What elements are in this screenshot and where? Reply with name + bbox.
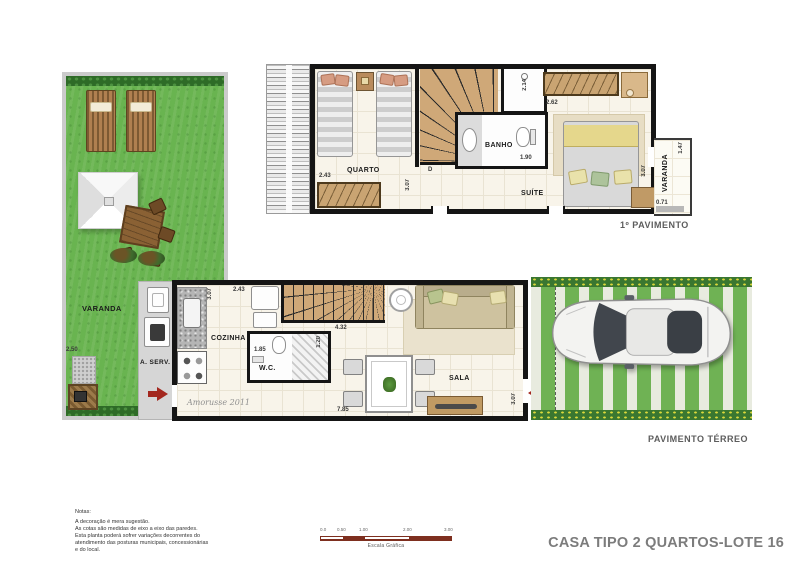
dim-quarto-depth: 3.07	[405, 179, 411, 191]
scale-segment	[321, 539, 343, 541]
service-area: A. SERV.	[138, 281, 174, 420]
bbq-pit	[74, 391, 87, 402]
door-opening	[172, 385, 177, 407]
door-opening	[431, 206, 449, 214]
single-bed	[376, 71, 412, 157]
scale-caption: Escala Gráfica	[320, 543, 452, 549]
single-bed	[317, 71, 353, 157]
graphic-scale: 0.0 0.50 1.00 2.00 3.00 Escala Gráfica	[320, 527, 452, 549]
stool	[626, 89, 634, 97]
notes-line: As cotas são medidas de eixo a eixo das …	[75, 526, 245, 533]
kitchen-sink	[183, 298, 201, 328]
tv-icon	[435, 404, 477, 409]
room-label-suite: SUÍTE	[521, 190, 544, 197]
scale-tick: 1.00	[359, 527, 368, 532]
bedspread	[564, 125, 638, 147]
pillow	[393, 74, 408, 86]
dining-chair	[415, 359, 435, 375]
pillow	[568, 169, 588, 186]
room-label-wc: W.C.	[259, 365, 276, 372]
dim-wc-depth: 1.20	[316, 336, 322, 348]
room-label-banho: BANHO	[485, 142, 513, 149]
pillow	[613, 169, 632, 185]
wardrobe	[317, 182, 381, 208]
dim-sala-depth: 3.07	[511, 393, 517, 405]
driveway	[531, 277, 752, 420]
pillow	[441, 291, 459, 307]
pillow	[379, 73, 395, 86]
dim-quarto-width: 2.43	[319, 173, 331, 179]
dim-wardrobe-width: 2.62	[546, 100, 558, 106]
tank-basin	[152, 293, 164, 307]
picture-frame	[361, 77, 369, 85]
paved-area	[72, 356, 96, 384]
notes-line: Esta planta poderá sofrer variações deco…	[75, 533, 245, 540]
notes-block: Notas: A decoração é mera sugestão. As c…	[75, 509, 245, 554]
ground-floor-caption: PAVIMENTO TÉRREO	[648, 434, 748, 444]
pillow	[489, 290, 507, 305]
entrance-arrow	[148, 391, 157, 397]
sofa-arm	[416, 286, 424, 328]
notes-line: atendimento das posturas municipais, con…	[75, 540, 245, 547]
interior-wall	[415, 69, 419, 167]
side-table	[631, 187, 655, 208]
dim-shower-depth: 2.14	[522, 79, 528, 91]
dim-banho-width: 1.90	[520, 155, 532, 161]
sofa	[415, 285, 515, 329]
scale-segment	[365, 539, 409, 541]
dim-varanda-depth: 1.47	[678, 142, 684, 154]
toilet	[272, 336, 286, 354]
upper-varanda: VARANDA 1.47 0.71	[654, 138, 692, 216]
scale-tick: 2.00	[403, 527, 412, 532]
pillow	[590, 171, 609, 187]
upper-floor-plan: 2.43 QUARTO 3.07 D 2.14 BANHO 1.90 2.62	[310, 64, 656, 214]
laundry-tank	[147, 287, 169, 313]
dim-cozinha-depth: 3.07	[207, 288, 213, 300]
scale-tick: 0.50	[337, 527, 346, 532]
room-label-cozinha: COZINHA	[211, 335, 246, 342]
wardrobe	[543, 72, 619, 96]
wc-room: 1.85 W.C. 1.20	[247, 331, 331, 383]
sun-lounger	[86, 90, 116, 152]
dim-fridge-width: 2.43	[233, 287, 245, 293]
room-label-aserv: A. SERV.	[140, 359, 170, 366]
floor-plan-sheet: 2.43 QUARTO 3.07 D 2.14 BANHO 1.90 2.62	[0, 0, 800, 566]
table-decor	[396, 295, 406, 305]
lounger-cushion	[90, 102, 112, 112]
car-top-view	[543, 287, 737, 379]
fridge	[251, 286, 279, 310]
sink	[462, 128, 477, 152]
dim-wc-width: 1.85	[254, 347, 266, 353]
sheet-title: CASA TIPO 2 QUARTOS-LOTE 16	[548, 535, 784, 551]
bush	[110, 248, 137, 263]
toilet	[516, 127, 530, 147]
door-opening	[547, 206, 565, 214]
double-bed	[563, 121, 639, 207]
washer-door	[150, 324, 165, 341]
shower-area	[292, 334, 328, 380]
pillow	[320, 73, 335, 86]
bathroom: BANHO 1.90	[455, 112, 548, 169]
notes-line: A decoração é mera sugestão.	[75, 519, 245, 526]
wc-shelf	[252, 356, 264, 363]
parasol-hub	[104, 197, 114, 206]
hedge	[66, 76, 224, 86]
scale-tick: 3.00	[444, 527, 453, 532]
room-label-varanda-upper: VARANDA	[662, 154, 669, 192]
dim-varanda-ground: 2.50	[66, 347, 78, 353]
artist-signature: Amorusse 2011	[187, 398, 250, 407]
roof-tiles	[266, 64, 310, 214]
dining-chair	[343, 359, 363, 375]
scale-bar	[320, 536, 452, 541]
dining-table	[365, 355, 413, 413]
dim-suite-depth: 3.07	[641, 165, 647, 177]
scale-segment	[343, 537, 365, 540]
lounger-cushion	[130, 102, 152, 112]
stove	[177, 351, 207, 384]
nightstand	[356, 72, 374, 91]
dishwasher	[253, 312, 277, 328]
pillow	[334, 74, 349, 87]
tv-sideboard	[427, 396, 483, 415]
garden-chair	[157, 226, 176, 243]
varanda-floor-strip	[656, 206, 684, 212]
flower-hedge	[531, 277, 752, 287]
bush	[138, 251, 165, 266]
plant-centerpiece	[383, 377, 396, 392]
flower-hedge	[531, 410, 752, 420]
upper-floor-caption: 1º PAVIMENTO	[620, 220, 689, 230]
notes-line: e do local.	[75, 547, 245, 554]
sun-lounger	[126, 90, 156, 152]
kitchen-counter	[177, 287, 207, 349]
scale-segment	[409, 537, 451, 540]
room-label-quarto: QUARTO	[347, 167, 380, 174]
shower-stall	[501, 69, 547, 114]
toilet-tank	[530, 129, 536, 145]
washer	[144, 317, 170, 347]
dim-stairs-width: 4.32	[335, 325, 347, 331]
round-side-table	[389, 288, 413, 312]
room-label-sala: SALA	[449, 375, 470, 382]
dining-chair	[343, 391, 363, 407]
scale-tick: 0.0	[320, 527, 326, 532]
entrance-arrow-head	[157, 387, 168, 401]
dim-varanda-width: 0.71	[656, 200, 668, 206]
notes-heading: Notas:	[75, 509, 245, 516]
stairs	[281, 285, 385, 323]
room-label-varanda-ground: VARANDA	[82, 304, 122, 313]
bbq-grill	[68, 384, 98, 410]
sofa-arm	[506, 286, 514, 328]
door-marker: D	[428, 167, 432, 173]
dim-sala-width: 7.85	[337, 407, 349, 413]
vanity-desk	[621, 72, 648, 98]
